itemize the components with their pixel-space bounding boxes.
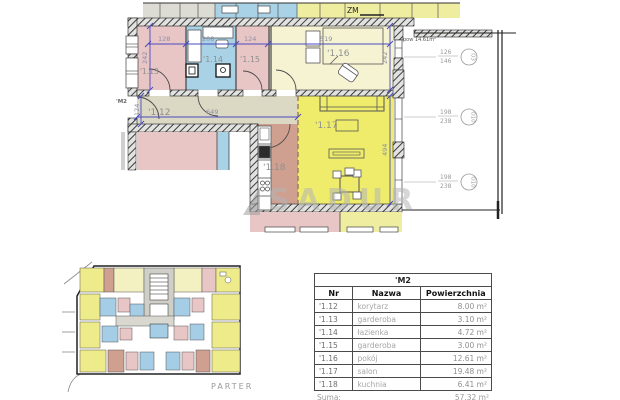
dim-h-salon: 494 [381, 144, 389, 156]
label-112: '1.12 [148, 108, 171, 118]
label-117: '1.17 [315, 121, 338, 131]
floorplan-page: ZM [0, 0, 620, 400]
dim-w13: 128 [158, 35, 170, 43]
label-116: '1.16 [327, 49, 350, 59]
overview-floor-label: PARTER [211, 382, 253, 391]
svg-text:238: 238 [440, 118, 452, 125]
sum-label: Suma: [317, 393, 341, 400]
building-overview-plan [62, 254, 254, 400]
window-markers: 126 146 O3 198 238 O10 198 238 O10 [404, 49, 477, 190]
main-floor-plan: ZM [0, 0, 620, 252]
svg-text:126: 126 [440, 49, 452, 56]
col-name: Nazwa [353, 287, 420, 300]
table-title: 'M2 [315, 274, 492, 287]
svg-text:198: 198 [440, 174, 452, 181]
table-row: '1.15 garderoba 3.00 m² [315, 339, 492, 352]
label-114: '1.14 [203, 55, 223, 64]
area-table: 'M2 Nr Nazwa Powierzchnia '1.12 korytarz… [314, 273, 492, 400]
svg-text:198: 198 [440, 109, 452, 116]
window-marker-3: 198 238 O10 [404, 174, 477, 190]
table-row: '1.16 pokój 12.61 m² [315, 352, 492, 365]
sum-value: 57.32 m² [455, 393, 489, 400]
label-118: '1.18 [263, 163, 286, 173]
dim-h-left: 242 [141, 52, 149, 64]
unit-label: 'M2 [116, 99, 127, 105]
table-row: '1.17 salon 19.48 m² [315, 365, 492, 378]
dim-w15: 124 [244, 35, 256, 43]
label-113: '1.13 [140, 67, 159, 76]
area-table-grid: 'M2 Nr Nazwa Powierzchnia '1.12 korytarz… [314, 273, 492, 391]
label-115: '1.15 [240, 55, 260, 64]
dim-w14: 208 [202, 35, 214, 43]
svg-text:146: 146 [440, 58, 452, 65]
neighbor-strip-left [121, 132, 249, 170]
table-row: '1.12 korytarz 8.00 m² [315, 300, 492, 313]
svg-text:238: 238 [440, 183, 452, 190]
zm-label: ZM [347, 6, 359, 15]
neighbor-strip-top [143, 3, 460, 18]
svg-text:O10: O10 [470, 111, 476, 123]
room-117-salon [298, 96, 394, 212]
dim-h-right: 242 [381, 52, 389, 64]
table-row: '1.14 łazienka 4.72 m² [315, 326, 492, 339]
svg-text:O3: O3 [470, 53, 476, 61]
col-area: Powierzchnia [420, 287, 491, 300]
svg-text:O10: O10 [470, 176, 476, 188]
balcony: pow 14.61m² [402, 30, 516, 219]
window-marker-2: 198 238 O10 [404, 109, 477, 125]
dim-h-corridor: 124 [133, 104, 141, 116]
dim-w-corridor: 649 [206, 108, 218, 116]
window-marker-1: 126 146 O3 [404, 49, 477, 65]
dim-w16: 519 [320, 35, 332, 43]
table-row: '1.13 garderoba 3.10 m² [315, 313, 492, 326]
table-row: '1.18 kuchnia 6.41 m² [315, 378, 492, 391]
neighbor-strip-bottom [250, 212, 402, 232]
col-nr: Nr [315, 287, 353, 300]
sum-row: Suma: 57.32 m² [314, 391, 492, 400]
balcony-area-label: pow 14.61m² [403, 37, 436, 43]
